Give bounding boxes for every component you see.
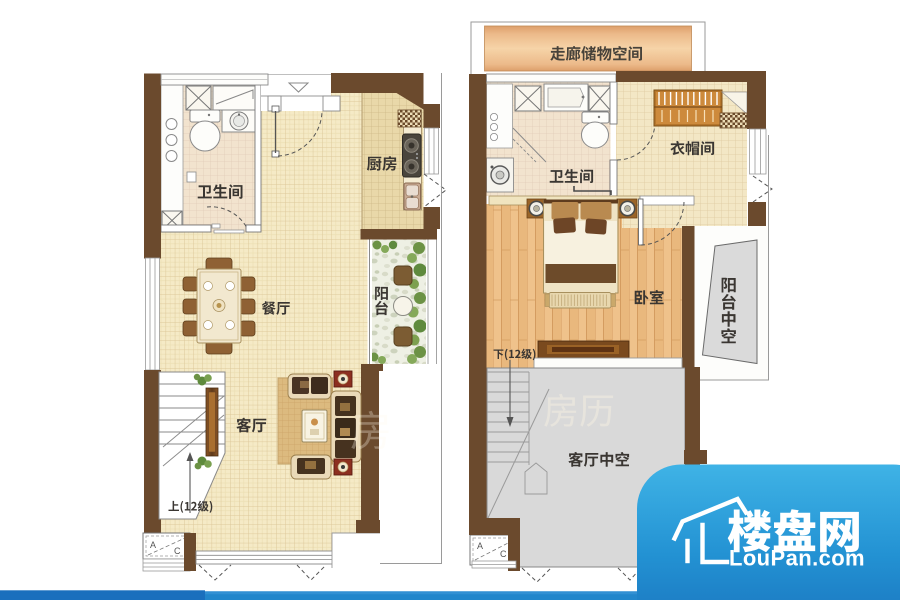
svg-text:C: C bbox=[174, 546, 181, 556]
svg-text:A: A bbox=[477, 541, 483, 551]
svg-text:C: C bbox=[500, 549, 507, 559]
svg-text:A: A bbox=[150, 540, 156, 550]
svg-text:LouPan.com: LouPan.com bbox=[729, 546, 865, 571]
